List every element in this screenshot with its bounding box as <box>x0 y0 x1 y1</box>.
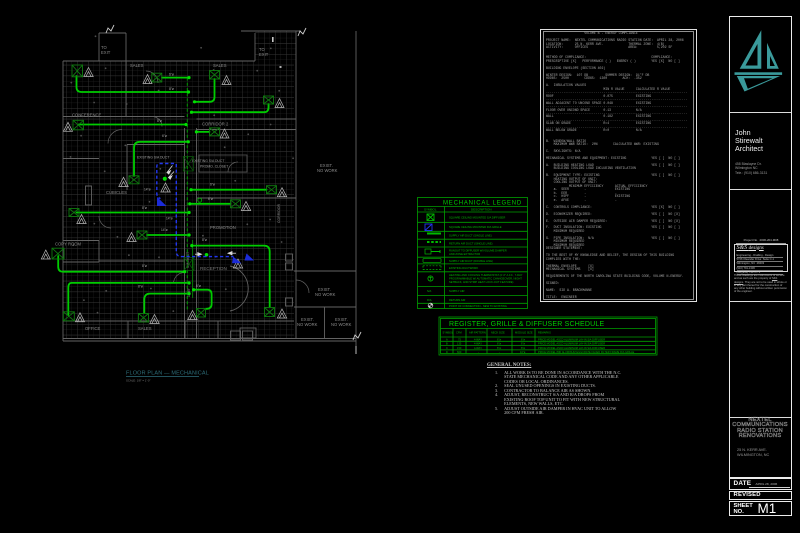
svg-text:SCALE: 1/8" = 1'-0": SCALE: 1/8" = 1'-0" <box>126 379 150 383</box>
svg-text:HEATING AND COOLING THERMOSTAT: HEATING AND COOLING THERMOSTAT (2'-6" A.… <box>449 273 523 277</box>
svg-text:CFM: CFM <box>456 331 462 335</box>
svg-text:14"ø: 14"ø <box>144 188 151 192</box>
svg-text:14"ø: 14"ø <box>161 228 168 232</box>
svg-text:PROMO. CLOSET: PROMO. CLOSET <box>200 165 228 169</box>
svg-text:B: B <box>446 342 448 346</box>
svg-text:CUBICLES: CUBICLES <box>106 190 127 195</box>
svg-text:S/A: S/A <box>427 289 432 293</box>
svg-text:NO WORK: NO WORK <box>297 322 318 327</box>
svg-text:4-WAY: 4-WAY <box>474 342 482 346</box>
svg-text:CONFERENCE: CONFERENCE <box>72 113 102 118</box>
svg-text:150: 150 <box>457 346 462 350</box>
svg-text:4-WAY: 4-WAY <box>474 346 482 350</box>
svg-text:A: A <box>446 337 448 341</box>
svg-text:RETURN AIR DUCT (SINGLE LINE): RETURN AIR DUCT (SINGLE LINE) <box>449 242 493 246</box>
svg-text:NECK SIZE: NECK SIZE <box>491 331 505 335</box>
svg-text:REMARKS: REMARKS <box>538 331 551 335</box>
svg-text:8"ø: 8"ø <box>202 238 207 242</box>
svg-text:8"ø: 8"ø <box>208 197 213 201</box>
svg-text:SYMBOL: SYMBOL <box>443 331 454 335</box>
svg-text:FLOOR PLAN — MECHANICAL: FLOOR PLAN — MECHANICAL <box>126 371 209 377</box>
svg-text:NO WORK: NO WORK <box>315 292 336 297</box>
svg-text:600: 600 <box>457 350 462 354</box>
svg-text:PROGRAMMABLE W/ AUTOMATIC CHAN: PROGRAMMABLE W/ AUTOMATIC CHANGEOVER, NI… <box>449 277 522 281</box>
svg-text:AIR PATTERN: AIR PATTERN <box>469 331 486 335</box>
svg-text:SETBACK, AND STRIP HEAT LOCK-O: SETBACK, AND STRIP HEAT LOCK-OUT FEATURE… <box>449 280 514 284</box>
svg-text:RUNOUT TO DIFFUSER W/VOLUME DA: RUNOUT TO DIFFUSER W/VOLUME DAMPER <box>449 248 507 252</box>
svg-text:NO WORK: NO WORK <box>331 322 352 327</box>
svg-text:EXIT: EXIT <box>101 50 111 55</box>
svg-text:EXISTING S/A DUCT: EXISTING S/A DUCT <box>192 159 224 163</box>
svg-text:SQUARE CEILING MOUNTED S/A DIF: SQUARE CEILING MOUNTED S/A DIFFUSER <box>449 216 505 220</box>
svg-text:SUPPLY AIR DUCT (DOUBLE LINE): SUPPLY AIR DUCT (DOUBLE LINE) <box>449 259 493 263</box>
svg-text:6"ø: 6"ø <box>210 182 215 186</box>
svg-text:6"ø: 6"ø <box>497 342 501 346</box>
svg-text:8"ø: 8"ø <box>497 346 501 350</box>
svg-text:EXISTING S/A DUCT: EXISTING S/A DUCT <box>137 156 169 160</box>
svg-text:OFFICE: OFFICE <box>85 326 101 331</box>
svg-text:135: 135 <box>457 342 462 346</box>
svg-text:6"ø: 6"ø <box>196 284 201 288</box>
svg-text:RECEPTION: RECEPTION <box>200 266 227 271</box>
svg-text:AND ZONE EXTRACTOR: AND ZONE EXTRACTOR <box>449 252 480 256</box>
svg-text:-: - <box>478 351 479 354</box>
svg-text:8"ø: 8"ø <box>142 206 147 210</box>
svg-text:10"ø: 10"ø <box>520 350 526 354</box>
svg-text:EXISTING DUCTWORK: EXISTING DUCTWORK <box>449 266 478 270</box>
svg-text:6"ø: 6"ø <box>521 342 525 346</box>
svg-text:8"ø: 8"ø <box>521 346 525 350</box>
svg-text:6"ø: 6"ø <box>162 134 167 138</box>
svg-text:8"ø: 8"ø <box>142 264 147 268</box>
svg-text:SALES: SALES <box>138 326 152 331</box>
svg-text:8"ø: 8"ø <box>157 119 162 123</box>
svg-text:D: D <box>446 350 448 354</box>
svg-text:MECHANICAL LEGEND: MECHANICAL LEGEND <box>443 201 522 207</box>
svg-text:PRICE MODEL ASCD ALUMINUM LAY-: PRICE MODEL ASCD ALUMINUM LAY-IN S/A DIF… <box>538 337 605 341</box>
svg-text:REGISTER, GRILLE & DIFFUSER SC: REGISTER, GRILLE & DIFFUSER SCHEDULE <box>449 321 605 328</box>
svg-text:-: - <box>499 351 500 354</box>
svg-text:SQUARE CEILING MOUNTED R/A GRI: SQUARE CEILING MOUNTED R/A GRILLE <box>449 225 502 229</box>
svg-text:DESCRIPTION: DESCRIPTION <box>471 208 492 212</box>
svg-text:4-WAY: 4-WAY <box>474 337 482 341</box>
svg-text:RETURN AIR: RETURN AIR <box>449 298 465 302</box>
svg-text:6"ø: 6"ø <box>497 337 501 341</box>
svg-text:PRICE MODEL ASCD ALUMINUM LAY-: PRICE MODEL ASCD ALUMINUM LAY-IN S/A DIF… <box>538 346 605 350</box>
svg-text:6"ø: 6"ø <box>169 73 174 77</box>
svg-text:R/A: R/A <box>427 298 432 302</box>
svg-text:MODULE SIZE: MODULE SIZE <box>515 331 533 335</box>
svg-text:14"ø: 14"ø <box>166 217 173 221</box>
svg-text:75: 75 <box>458 337 461 341</box>
svg-text:SALES: SALES <box>213 63 227 68</box>
svg-text:POINT OF CONNECTION - NEW TO E: POINT OF CONNECTION - NEW TO EXISTING <box>449 304 507 308</box>
svg-text:6"ø: 6"ø <box>521 337 525 341</box>
svg-text:EXIT: EXIT <box>259 52 269 57</box>
svg-text:C: C <box>446 346 448 350</box>
svg-text:CORRIDOR: CORRIDOR <box>277 203 281 223</box>
svg-text:SUPPLY AIR: SUPPLY AIR <box>449 289 464 293</box>
svg-text:SYMBOL: SYMBOL <box>424 208 437 212</box>
svg-text:8"ø: 8"ø <box>138 285 143 289</box>
svg-text:8"ø: 8"ø <box>169 87 174 91</box>
svg-text:PROMOTION: PROMOTION <box>210 225 236 230</box>
svg-text:SALES: SALES <box>130 63 144 68</box>
svg-text:NO WORK: NO WORK <box>317 168 338 173</box>
svg-text:CORRIDOR 2: CORRIDOR 2 <box>202 122 229 127</box>
svg-text:SUPPLY AIR DUCT (SINGLE LINE): SUPPLY AIR DUCT (SINGLE LINE) <box>449 234 492 238</box>
svg-text:COPY ROOM: COPY ROOM <box>55 242 81 247</box>
svg-text:PRICE MODEL ASCD ALUMINUM LAY-: PRICE MODEL ASCD ALUMINUM LAY-IN S/A DIF… <box>538 342 605 346</box>
svg-text:PRICE MODEL 80D ALUMINUM EGGCR: PRICE MODEL 80D ALUMINUM EGGCRATE FACED … <box>538 350 634 354</box>
